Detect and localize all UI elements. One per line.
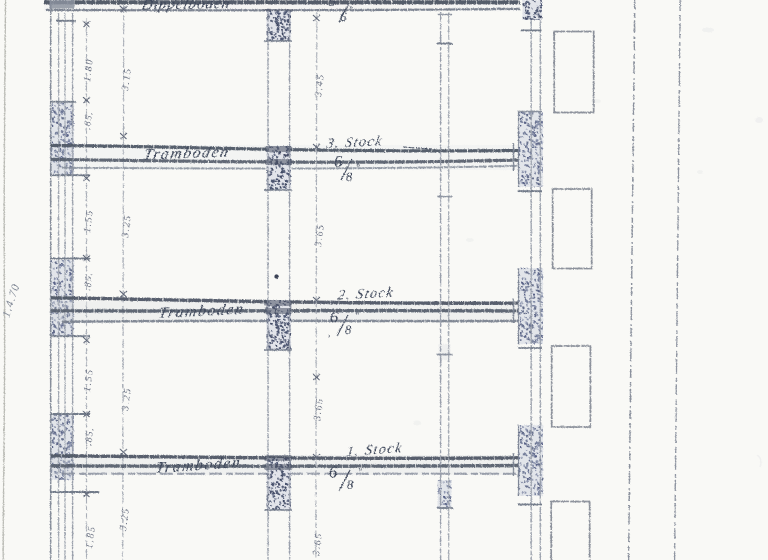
svg-text:2. Stock: 2. Stock xyxy=(336,285,395,304)
svg-text:″: ″ xyxy=(358,467,362,477)
svg-text:Dippelboden: Dippelboden xyxy=(139,0,232,13)
svg-text:3. Stock: 3. Stock xyxy=(324,133,384,152)
svg-text:″: ″ xyxy=(349,5,353,15)
svg-text:″: ″ xyxy=(355,311,359,321)
svg-text:8: 8 xyxy=(345,323,352,337)
svg-text:8: 8 xyxy=(347,478,354,492)
svg-text:Tramboden: Tramboden xyxy=(142,144,231,164)
svg-text:,: , xyxy=(328,328,331,339)
svg-text:6: 6 xyxy=(334,152,343,171)
svg-text:6: 6 xyxy=(329,463,338,482)
svg-text:5: 5 xyxy=(329,0,336,10)
svg-text:6: 6 xyxy=(340,9,347,24)
svg-text:6: 6 xyxy=(330,308,339,327)
svg-text:°: ° xyxy=(356,162,360,172)
svg-text:8: 8 xyxy=(346,170,353,184)
